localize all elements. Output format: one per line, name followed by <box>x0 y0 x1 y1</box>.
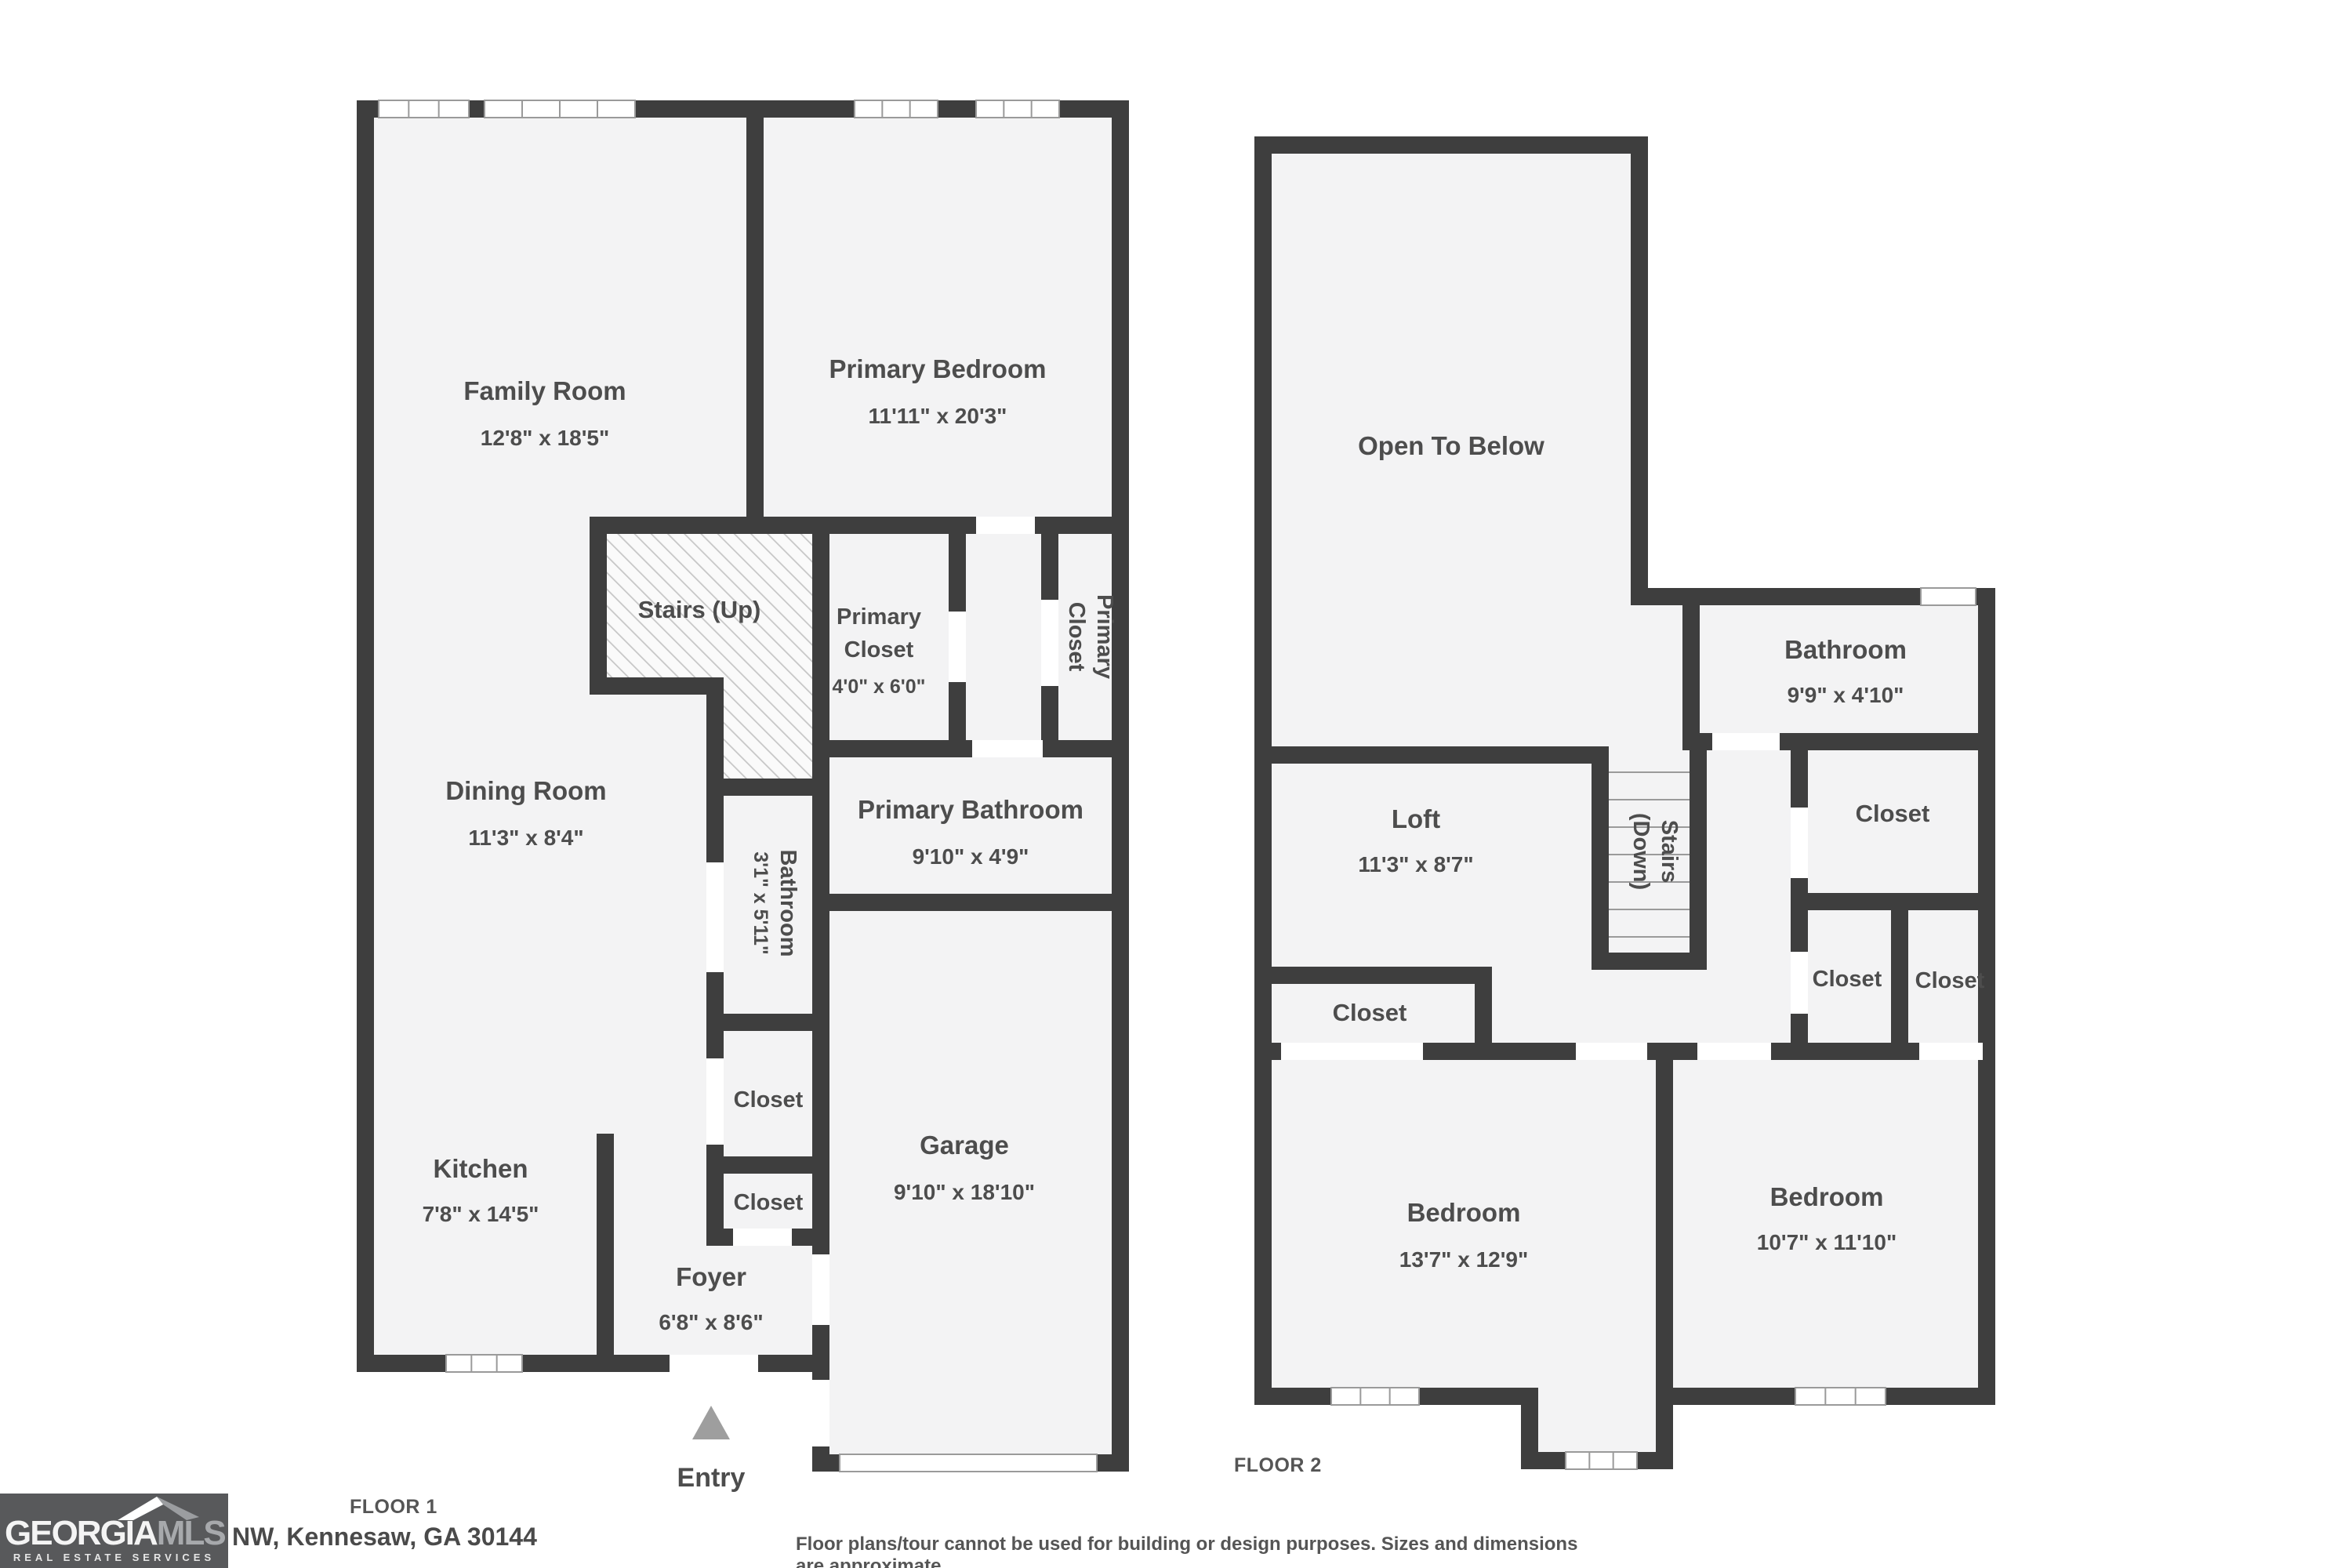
room-label-kitchen: Kitchen <box>433 1154 528 1183</box>
wall <box>1978 588 1995 1405</box>
wall <box>1254 136 1648 154</box>
logo-mls: MLS <box>157 1514 225 1552</box>
wall <box>1112 100 1129 1472</box>
wall <box>590 517 607 695</box>
window <box>855 100 938 118</box>
room-label-primary-closet: Primary <box>837 604 921 630</box>
room-label-bedroom-2: Bedroom <box>1770 1182 1884 1211</box>
room-label-bathroom-2: Bathroom <box>1784 635 1907 664</box>
georgia-mls-logo: GEORGIAMLS REAL ESTATE SERVICES <box>0 1494 228 1568</box>
wall <box>590 517 1129 534</box>
room-label-closet-6: Closet <box>1915 968 1985 993</box>
wall <box>1891 910 1908 1060</box>
room-label-entry: Entry <box>677 1463 746 1493</box>
room-label-primary-bedroom: 11'11" x 20'3" <box>869 404 1007 428</box>
window <box>976 100 1059 118</box>
property-address: NW, Kennesaw, GA 30144 <box>232 1523 537 1552</box>
room-label-dining-room: 11'3" x 8'4" <box>468 826 583 850</box>
wall <box>706 1156 829 1174</box>
room-label-family-room: 12'8" x 18'5" <box>481 426 609 450</box>
wall <box>357 1355 829 1372</box>
door-opening <box>972 740 1043 757</box>
wall <box>706 677 724 796</box>
floor-plan-canvas: Family Room12'8" x 18'5"Primary Bedroom1… <box>0 0 2352 1568</box>
room-label-bedroom-1: Bedroom <box>1407 1198 1521 1227</box>
svg-text:Stairs: Stairs <box>1657 820 1682 884</box>
door-opening <box>812 1380 829 1446</box>
wall <box>812 740 1129 757</box>
room-label-dining-room: Dining Room <box>445 776 606 805</box>
door-opening <box>706 1058 724 1145</box>
svg-text:(Down): (Down) <box>1628 813 1653 890</box>
room-label-closet-5: Closet <box>1813 967 1882 992</box>
wall <box>812 1446 829 1472</box>
door-opening <box>1712 733 1780 750</box>
door-opening <box>670 1355 758 1372</box>
wall <box>1592 746 1609 970</box>
floor2-label: FLOOR 2 <box>1234 1454 1322 1477</box>
wall <box>1254 136 1272 1405</box>
wall <box>812 517 829 911</box>
room-label-stairs-up: Stairs (Up) <box>638 596 761 623</box>
entry-arrow-icon <box>692 1406 730 1439</box>
door-opening <box>1576 1043 1647 1060</box>
door-opening <box>1697 1043 1771 1060</box>
wall <box>1690 750 1707 970</box>
wall <box>812 894 1129 911</box>
window <box>1921 588 1976 605</box>
svg-text:3'1" x 5'11": 3'1" x 5'11" <box>750 851 771 955</box>
room-label-bedroom-2: 10'7" x 11'10" <box>1757 1230 1896 1254</box>
room-label-family-room: Family Room <box>463 376 626 405</box>
wall <box>1254 746 1609 764</box>
room-label-primary-closet: Closet <box>844 637 914 662</box>
window <box>446 1355 522 1372</box>
wall <box>1791 893 1995 910</box>
logo-wordmark: GEORGIAMLS <box>5 1514 225 1553</box>
wall <box>597 1134 614 1372</box>
room-label-primary-bathroom: Primary Bathroom <box>858 795 1083 824</box>
room-label-garage: 9'10" x 18'10" <box>894 1180 1035 1204</box>
wall <box>357 100 374 1372</box>
room-label-open-to-below: Open To Below <box>1358 431 1544 460</box>
room-label-loft: 11'3" x 8'7" <box>1358 852 1473 877</box>
logo-tagline: REAL ESTATE SERVICES <box>0 1552 228 1563</box>
room-label-bathroom-2: 9'9" x 4'10" <box>1788 683 1904 707</box>
window <box>485 100 635 118</box>
wall <box>1254 967 1492 984</box>
logo-georgia: GEORGIA <box>5 1514 157 1552</box>
wall <box>706 779 829 796</box>
room-label-bedroom-1: 13'7" x 12'9" <box>1399 1247 1528 1272</box>
floor-plan-page: Family Room12'8" x 18'5"Primary Bedroom1… <box>0 0 2352 1568</box>
wall <box>746 100 764 534</box>
room-label-primary-bedroom: Primary Bedroom <box>829 354 1047 383</box>
door-opening <box>1041 600 1058 686</box>
room-label-foyer: Foyer <box>676 1262 746 1291</box>
wall <box>706 1014 829 1031</box>
room-label-closet-2: Closet <box>734 1190 804 1215</box>
door-opening <box>949 612 966 682</box>
door-opening <box>1791 808 1808 878</box>
wall <box>1682 588 1700 750</box>
room-label-garage: Garage <box>920 1131 1009 1160</box>
floor1-label: FLOOR 1 <box>350 1496 437 1519</box>
window <box>379 100 469 118</box>
window <box>1566 1452 1637 1469</box>
room-label-primary-bathroom: 9'10" x 4'9" <box>913 844 1029 869</box>
door-opening <box>1791 952 1808 1014</box>
disclaimer-text: Floor plans/tour cannot be used for buil… <box>796 1534 1580 1568</box>
wall <box>590 677 724 695</box>
room-label-kitchen: 7'8" x 14'5" <box>423 1202 539 1226</box>
wall <box>1592 953 1707 970</box>
window <box>1795 1388 1886 1405</box>
room-label-primary-closet: 4'0" x 6'0" <box>832 676 925 698</box>
window <box>840 1454 1097 1472</box>
room-label-foyer: 6'8" x 8'6" <box>659 1310 763 1334</box>
room-label-closet-4: Closet <box>1856 800 1930 827</box>
door-opening <box>1919 1043 1983 1060</box>
window <box>1331 1388 1419 1405</box>
svg-text:Closet: Closet <box>1064 602 1089 672</box>
svg-text:Primary: Primary <box>1092 594 1117 679</box>
room-label-loft: Loft <box>1392 804 1440 833</box>
room-label-closet-3: Closet <box>1333 999 1407 1026</box>
svg-text:Bathroom: Bathroom <box>775 850 800 957</box>
door-opening <box>976 517 1035 534</box>
door-opening <box>733 1229 792 1246</box>
room-label-closet-1: Closet <box>734 1087 804 1112</box>
door-opening <box>1281 1043 1423 1060</box>
wall <box>1631 136 1648 605</box>
stairs-hatch <box>724 677 812 779</box>
wall <box>1656 1060 1673 1469</box>
door-opening <box>706 862 724 972</box>
door-opening <box>812 1254 829 1325</box>
